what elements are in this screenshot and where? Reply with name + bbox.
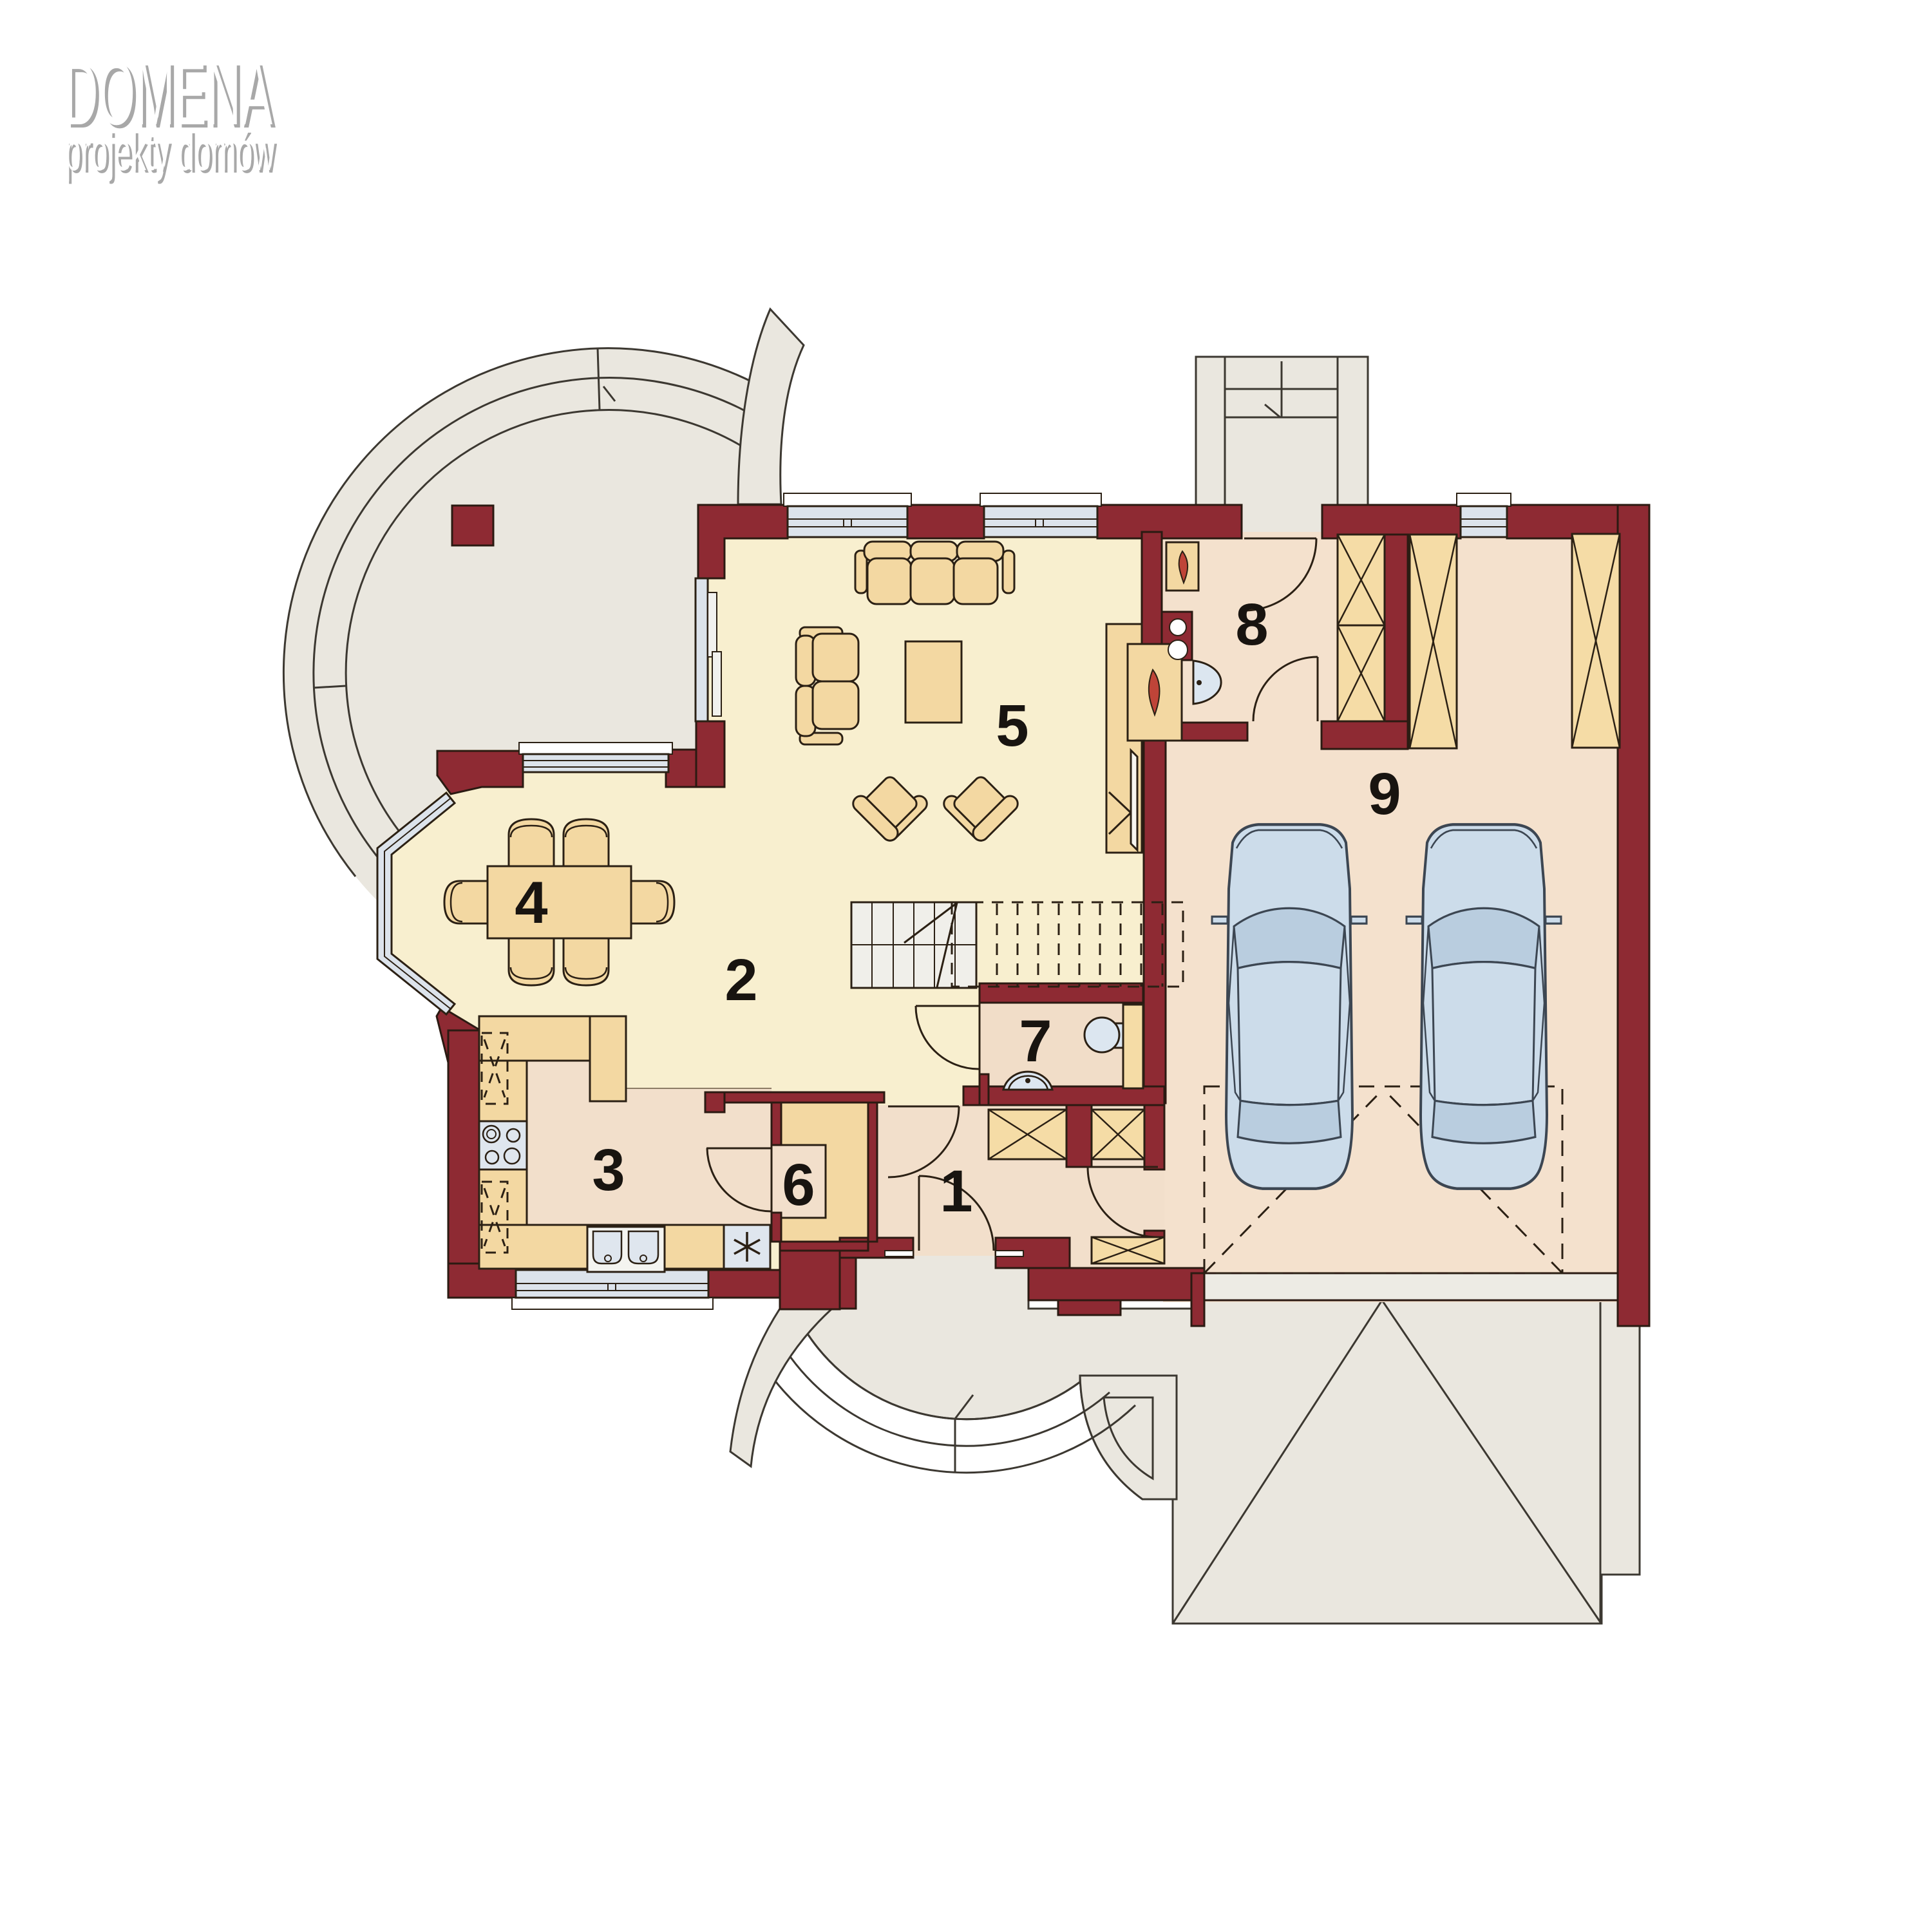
svg-text:4: 4 — [515, 870, 547, 936]
svg-text:9: 9 — [1368, 761, 1401, 827]
svg-text:1: 1 — [940, 1159, 972, 1224]
svg-text:3: 3 — [592, 1137, 625, 1203]
svg-text:8: 8 — [1235, 592, 1268, 658]
svg-text:7: 7 — [1019, 1009, 1052, 1074]
svg-text:6: 6 — [782, 1152, 815, 1218]
svg-text:5: 5 — [996, 693, 1028, 759]
svg-text:2: 2 — [724, 947, 757, 1013]
svg-text:projekty domów: projekty domów — [64, 121, 274, 182]
